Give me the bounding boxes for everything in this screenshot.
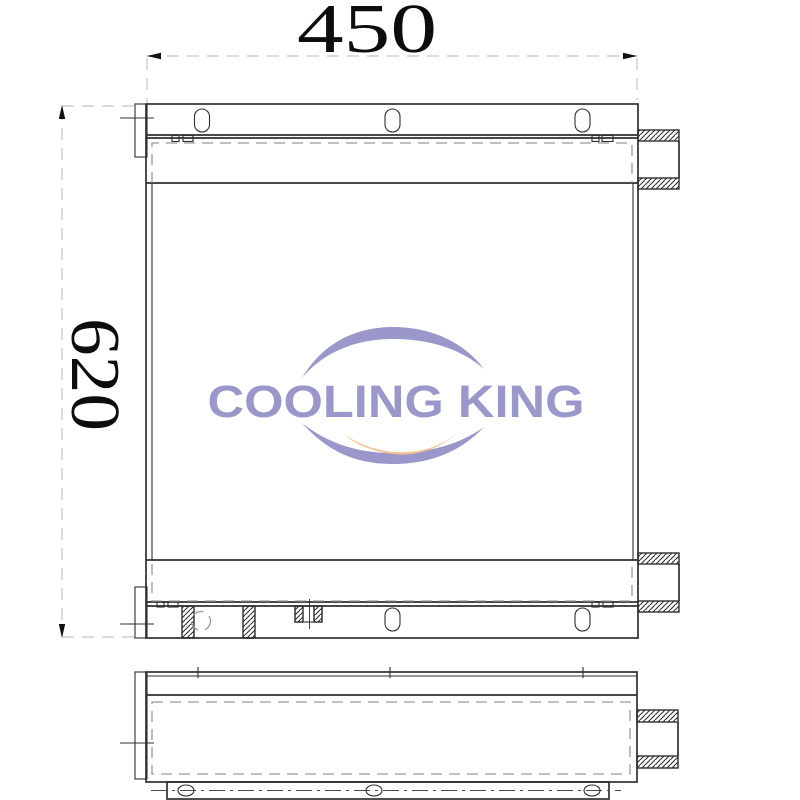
radiator-drawing-svg: 450 620 [0,0,800,800]
bottom-view-left-tab [120,672,154,779]
bottom-rail-details [182,599,590,638]
drain-fitting [295,599,322,629]
front-view [120,104,679,638]
arrow-up-icon [59,105,65,119]
bottom-tank-hidden-edge [152,564,632,601]
arrow-down-icon [59,624,65,638]
watermark-logo: COOLING KING [208,327,585,464]
dimension-width: 450 [147,0,637,112]
bottom-view-connector [637,710,678,768]
top-rail-holes [195,109,591,132]
attachment-notches [157,136,613,608]
top-tank-hidden-edge [152,143,632,183]
height-dimension-label: 620 [56,318,133,431]
radiator-body-outline [146,104,638,638]
bottom-view-hidden-core [152,702,630,774]
outlet-connector [638,553,679,612]
arrow-right-icon [623,53,637,59]
inlet-connector [638,130,679,189]
width-dimension-label: 450 [297,0,437,68]
bottom-mounting-strip [151,782,621,799]
left-mounting-tab-top [120,104,154,157]
logo-top-swoosh [302,327,484,378]
hatched-pillar-right [243,606,255,638]
bottom-view [120,667,678,799]
left-mounting-tab-bottom [120,587,154,638]
technical-drawing-canvas: 450 620 [0,0,800,800]
logo-bottom-swoosh [302,423,484,464]
logo-text: COOLING KING [208,376,585,427]
bottom-view-outline [146,672,637,782]
arrow-left-icon [147,53,161,59]
dimension-height: 620 [56,105,142,638]
